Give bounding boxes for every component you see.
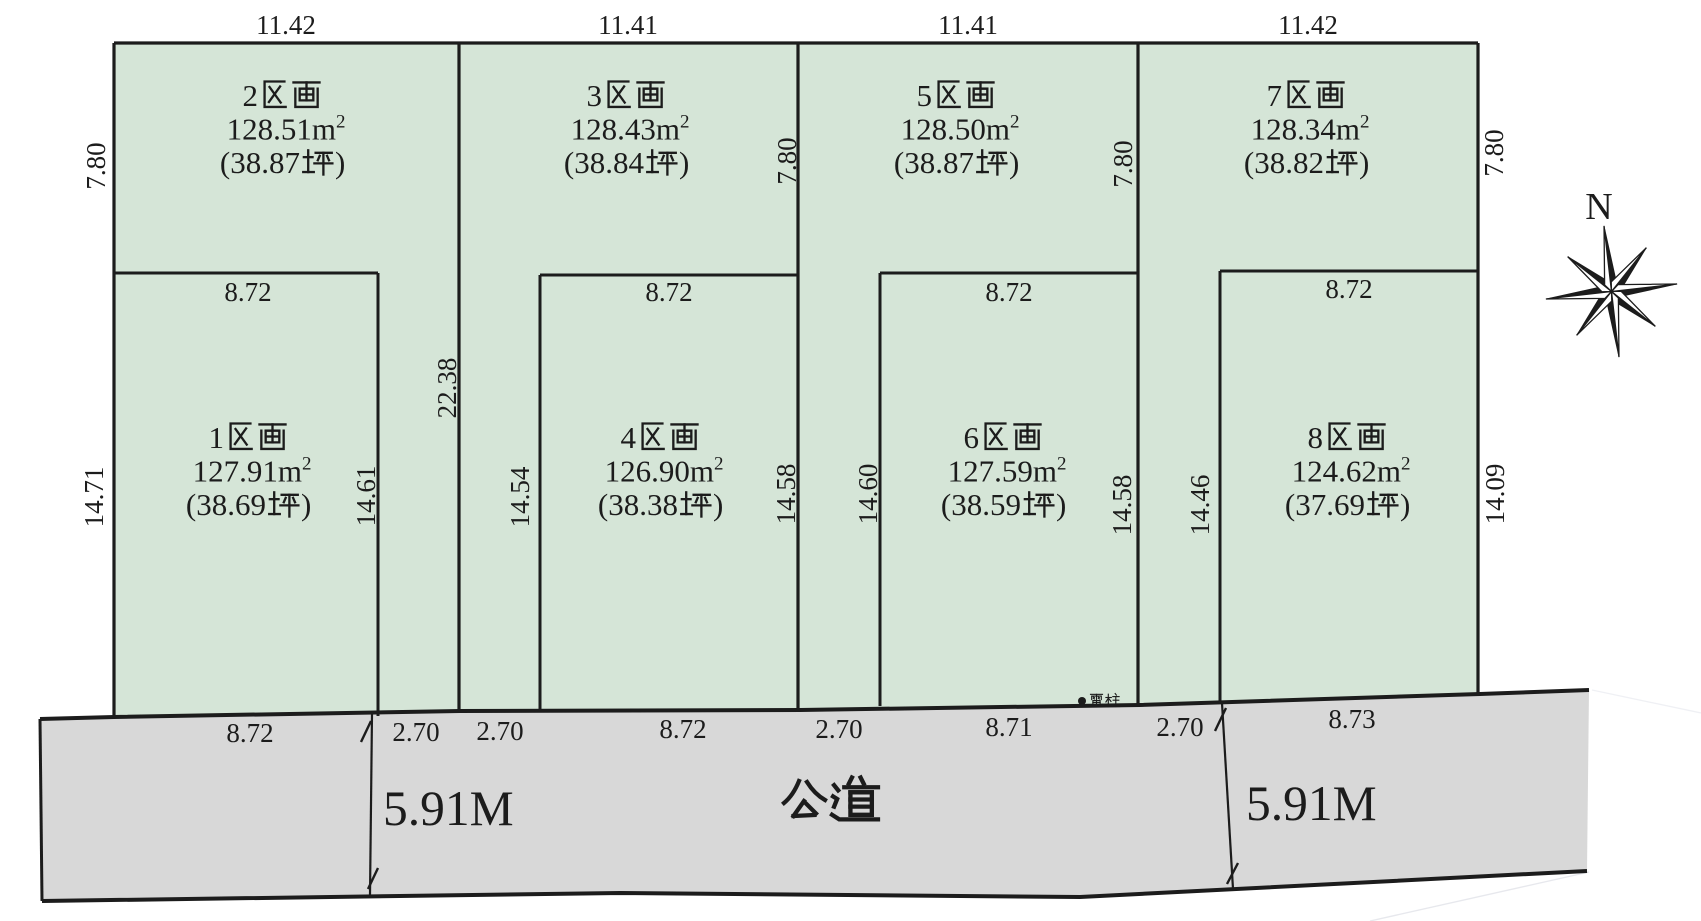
- svg-text:8: 8: [1308, 420, 1324, 455]
- svg-text:4: 4: [621, 420, 637, 455]
- svg-text:(37.69: (37.69: [1285, 487, 1365, 522]
- svg-text:): ): [1009, 145, 1019, 180]
- svg-text:): ): [713, 487, 723, 522]
- svg-text:): ): [1400, 487, 1410, 522]
- svg-text:3: 3: [587, 78, 603, 113]
- svg-text:14.71: 14.71: [79, 467, 109, 528]
- svg-text:): ): [335, 145, 345, 180]
- svg-text:6: 6: [964, 420, 980, 455]
- svg-text:14.58: 14.58: [1107, 475, 1137, 536]
- svg-text:127.59m2: 127.59m2: [948, 454, 1067, 489]
- svg-text:14.54: 14.54: [505, 466, 535, 527]
- svg-text:2.70: 2.70: [815, 714, 862, 744]
- svg-text:7.80: 7.80: [81, 142, 111, 189]
- svg-text:(38.87: (38.87: [220, 145, 300, 180]
- svg-text:1: 1: [209, 420, 225, 455]
- svg-text:8.71: 8.71: [985, 712, 1032, 742]
- svg-text:8.72: 8.72: [985, 277, 1032, 307]
- svg-text:7: 7: [1267, 78, 1283, 113]
- svg-text:7.80: 7.80: [772, 137, 802, 184]
- svg-text:8.72: 8.72: [226, 718, 273, 748]
- svg-text:): ): [301, 487, 311, 522]
- svg-text:128.51m2: 128.51m2: [227, 112, 346, 147]
- svg-text:128.43m2: 128.43m2: [571, 112, 690, 147]
- svg-text:2: 2: [243, 78, 259, 113]
- svg-text:2.70: 2.70: [476, 716, 523, 746]
- svg-text:8.72: 8.72: [224, 277, 271, 307]
- svg-text:11.42: 11.42: [256, 10, 316, 40]
- svg-text:2.70: 2.70: [392, 717, 439, 747]
- svg-text:8.72: 8.72: [1325, 274, 1372, 304]
- svg-text:(38.84: (38.84: [564, 145, 645, 180]
- svg-text:2.70: 2.70: [1156, 712, 1203, 742]
- svg-text:11.41: 11.41: [938, 10, 998, 40]
- svg-text:126.90m2: 126.90m2: [605, 454, 724, 489]
- svg-text:7.80: 7.80: [1108, 140, 1138, 187]
- svg-text:22.38: 22.38: [432, 358, 462, 419]
- svg-text:(38.82: (38.82: [1244, 145, 1324, 180]
- svg-text:): ): [1359, 145, 1369, 180]
- svg-text:127.91m2: 127.91m2: [193, 454, 312, 489]
- svg-text:5: 5: [917, 78, 933, 113]
- svg-text:11.41: 11.41: [598, 10, 658, 40]
- svg-text:7.80: 7.80: [1479, 129, 1509, 176]
- svg-text:8.73: 8.73: [1328, 704, 1375, 734]
- svg-text:): ): [1056, 487, 1066, 522]
- svg-text:(38.38: (38.38: [598, 487, 678, 522]
- svg-text:14.61: 14.61: [351, 466, 381, 527]
- svg-text:14.09: 14.09: [1480, 464, 1510, 525]
- svg-text:14.58: 14.58: [771, 464, 801, 525]
- svg-text:(38.87: (38.87: [894, 145, 974, 180]
- svg-text:14.46: 14.46: [1185, 475, 1215, 536]
- svg-text:8.72: 8.72: [659, 714, 706, 744]
- svg-text:124.62m2: 124.62m2: [1292, 454, 1411, 489]
- svg-text:N: N: [1585, 186, 1612, 228]
- svg-text:14.60: 14.60: [853, 464, 883, 525]
- svg-text:11.42: 11.42: [1278, 10, 1338, 40]
- svg-text:(38.69: (38.69: [186, 487, 266, 522]
- svg-text:5.91M: 5.91M: [1246, 776, 1377, 831]
- svg-text:128.50m2: 128.50m2: [901, 112, 1020, 147]
- svg-text:): ): [679, 145, 689, 180]
- svg-text:5.91M: 5.91M: [383, 781, 514, 836]
- svg-text:128.34m2: 128.34m2: [1251, 112, 1370, 147]
- svg-text:(38.59: (38.59: [941, 487, 1021, 522]
- svg-text:8.72: 8.72: [645, 277, 692, 307]
